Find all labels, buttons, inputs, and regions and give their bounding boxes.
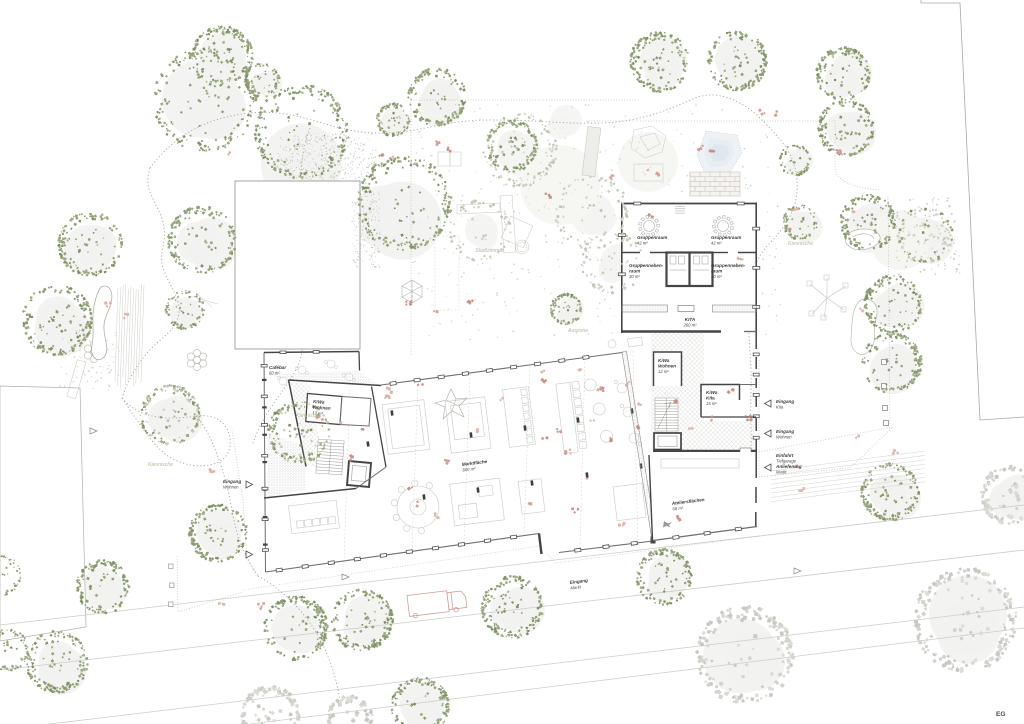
svg-text:60 m²: 60 m² bbox=[269, 371, 280, 376]
svg-text:Kiesnische: Kiesnische bbox=[296, 413, 321, 419]
svg-text:260 m²: 260 m² bbox=[682, 323, 697, 328]
svg-text:Wohnen: Wohnen bbox=[776, 435, 792, 440]
svg-text:raum: raum bbox=[629, 269, 640, 274]
svg-text:Eingang: Eingang bbox=[776, 399, 794, 404]
svg-text:Gruppenraum: Gruppenraum bbox=[711, 235, 741, 240]
svg-text:Kiesnische: Kiesnische bbox=[788, 241, 813, 247]
svg-text:raum: raum bbox=[711, 269, 722, 274]
svg-text:12 m²: 12 m² bbox=[658, 369, 669, 374]
svg-text:Gruppenneben-: Gruppenneben- bbox=[629, 263, 664, 268]
svg-text:Wohnen: Wohnen bbox=[658, 364, 676, 369]
svg-text:Kita: Kita bbox=[706, 396, 715, 401]
svg-text:KiWa: KiWa bbox=[658, 358, 670, 363]
svg-text:30 m²: 30 m² bbox=[711, 274, 722, 279]
svg-text:30 m²: 30 m² bbox=[629, 274, 640, 279]
svg-text:Markt: Markt bbox=[776, 470, 787, 475]
svg-text:42 m²: 42 m² bbox=[637, 241, 648, 246]
svg-text:Wohnen: Wohnen bbox=[223, 485, 239, 490]
svg-text:Eingang: Eingang bbox=[776, 429, 794, 434]
svg-text:42 m²: 42 m² bbox=[711, 241, 722, 246]
svg-text:Einfahrt: Einfahrt bbox=[776, 453, 794, 458]
svg-text:KiWa: KiWa bbox=[706, 390, 718, 395]
svg-text:EG: EG bbox=[996, 711, 1006, 718]
svg-text:Eingang: Eingang bbox=[223, 479, 241, 484]
svg-text:Stadtzimmer: Stadtzimmer bbox=[475, 248, 504, 254]
svg-text:KITA: KITA bbox=[685, 317, 695, 322]
svg-text:Auszone: Auszone bbox=[567, 328, 588, 334]
svg-text:Cafébar: Cafébar bbox=[269, 365, 286, 370]
svg-text:Kita: Kita bbox=[776, 405, 784, 410]
svg-text:Anlieferung: Anlieferung bbox=[775, 464, 802, 469]
svg-text:Kiesnische: Kiesnische bbox=[148, 462, 173, 468]
svg-text:Tiefgarage: Tiefgarage bbox=[776, 459, 797, 464]
svg-text:Gruppenraum: Gruppenraum bbox=[637, 235, 667, 240]
svg-text:Gruppenneben-: Gruppenneben- bbox=[711, 263, 746, 268]
svg-text:15 m²: 15 m² bbox=[706, 401, 717, 406]
